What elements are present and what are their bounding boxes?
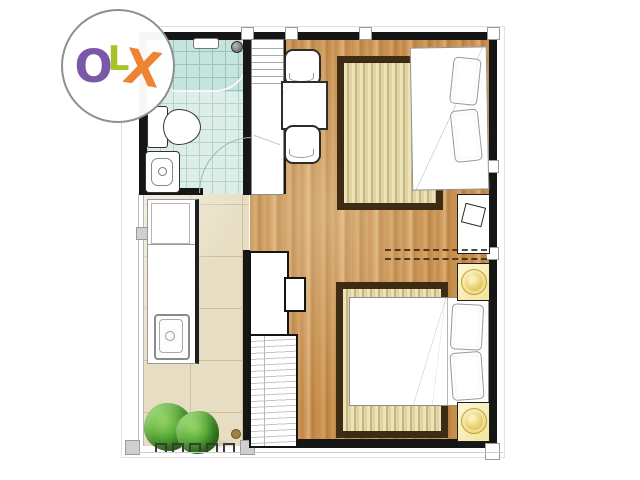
kitchen-counter	[147, 199, 199, 364]
dining-chair-bottom	[284, 125, 321, 164]
olx-logo-badge: O L X	[61, 9, 175, 123]
shower-head-icon	[231, 41, 243, 53]
wash-basin	[145, 151, 180, 193]
railing-post	[223, 443, 235, 452]
floor-drain	[231, 429, 241, 439]
pillow	[450, 108, 483, 163]
lamp-icon	[461, 408, 487, 434]
right-wall	[489, 34, 497, 451]
sink-drain	[165, 331, 175, 341]
lamp-icon	[461, 269, 487, 295]
railing-post	[172, 443, 184, 452]
nightstand-upper	[457, 263, 490, 301]
console-seat	[284, 277, 306, 312]
pillow	[449, 56, 482, 106]
wardrobe	[249, 334, 298, 448]
railing-post	[155, 443, 167, 452]
single-bed	[410, 46, 489, 190]
side-table	[457, 194, 490, 254]
partition-dashed-line	[385, 249, 487, 260]
tv-console	[249, 251, 289, 338]
pillow	[450, 303, 484, 351]
railing-post	[206, 443, 218, 452]
balcony-railing-line	[127, 452, 503, 453]
closet-shelf-lines	[252, 42, 283, 86]
counter-divider	[148, 244, 195, 245]
side-table-object	[461, 203, 486, 227]
logo-letter-l: L	[108, 42, 130, 76]
nightstand-lower	[457, 402, 490, 442]
counter-cabinet	[151, 203, 190, 244]
railing-post	[189, 443, 201, 452]
column-marker	[359, 27, 372, 40]
kitchen-sink	[154, 314, 190, 360]
shelf-closet	[251, 39, 284, 195]
column-marker	[285, 27, 298, 40]
dining-table	[281, 81, 328, 130]
pillow	[449, 351, 484, 401]
bathtub-shelf	[193, 38, 219, 49]
basin-faucet	[158, 167, 167, 176]
chair-seat-line	[289, 149, 314, 158]
floor-plan-image: O L X	[0, 0, 640, 480]
double-bed	[349, 297, 489, 406]
closet-door-line	[254, 90, 280, 190]
column-marker	[487, 27, 500, 40]
